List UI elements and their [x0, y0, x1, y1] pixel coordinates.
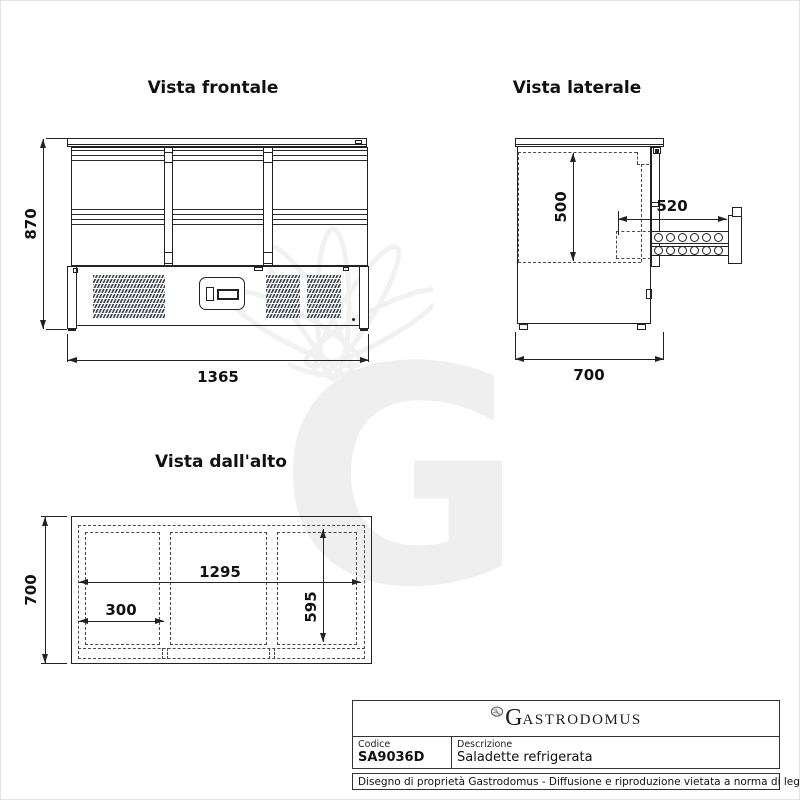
worktop	[67, 138, 367, 147]
arrowhead	[570, 252, 576, 261]
code-label: Codice	[358, 739, 390, 750]
dimension-label: 870	[22, 208, 40, 239]
extension-line	[46, 329, 67, 330]
mullion	[263, 147, 273, 266]
vent-grille	[93, 275, 165, 318]
arrowhead	[352, 579, 361, 585]
compartment	[277, 532, 357, 645]
dimension-label: 1365	[197, 368, 239, 386]
drawer-front	[172, 209, 263, 226]
control-display	[217, 289, 239, 300]
chef-hat-icon	[490, 706, 504, 720]
arrowhead	[655, 356, 664, 362]
drawer-front	[172, 150, 263, 162]
dimension-line	[79, 621, 164, 622]
arrowhead	[718, 216, 727, 222]
drawer-front	[272, 150, 367, 162]
brand-initial: G	[505, 706, 522, 730]
description-value: Saladette refrigerata	[457, 750, 593, 765]
arrowhead	[40, 320, 46, 329]
dimension-line	[323, 529, 324, 642]
arrowhead	[320, 633, 326, 642]
control-switch	[206, 287, 214, 301]
description-label: Descrizione	[457, 739, 512, 750]
arrowhead	[40, 139, 46, 148]
arrowhead	[79, 618, 88, 624]
arrowhead	[155, 618, 164, 624]
side-view-title: Vista laterale	[513, 78, 642, 98]
arrowhead	[320, 529, 326, 538]
arrowhead	[360, 357, 369, 363]
mullion	[164, 147, 173, 266]
vent-grille	[307, 275, 341, 318]
dimension-label: 520	[656, 197, 687, 215]
compartment	[170, 532, 267, 645]
foot	[68, 328, 76, 331]
dimension-label: 1295	[199, 563, 241, 581]
drawer-front	[72, 150, 164, 162]
cabinet-body	[517, 146, 651, 324]
extension-line	[46, 138, 67, 139]
dimension-line	[68, 360, 369, 361]
dimension-line	[618, 219, 727, 220]
compartment	[85, 532, 160, 645]
dimension-line	[573, 153, 574, 261]
leg	[67, 266, 77, 329]
dimension-label: 595	[302, 591, 320, 622]
dimension-line	[45, 517, 46, 663]
drawer-cabinet-body	[71, 147, 368, 266]
arrowhead	[79, 579, 88, 585]
arrowhead	[618, 216, 627, 222]
drawer-front	[272, 209, 367, 226]
dimension-label: 700	[573, 366, 604, 384]
foot	[637, 324, 646, 330]
dimension-label: 500	[552, 191, 570, 222]
leg	[359, 266, 369, 329]
brand-logo: GASTRODOMUS	[352, 701, 780, 735]
arrowhead	[515, 356, 524, 362]
dimension-line	[43, 139, 44, 329]
legal-notice: Disegno di proprietà Gastrodomus - Diffu…	[358, 776, 800, 788]
dimension-label: 300	[105, 601, 136, 619]
extension-line	[41, 663, 67, 664]
vent-grille	[266, 275, 300, 318]
dimension-label: 700	[22, 574, 40, 605]
top-view-title: Vista dall'alto	[155, 452, 287, 472]
drawer-front	[72, 209, 164, 226]
dimension-line	[79, 582, 361, 583]
dimension-line	[515, 359, 664, 360]
extension-line	[618, 211, 619, 235]
front-view-title: Vista frontale	[148, 78, 279, 98]
foot	[519, 324, 528, 330]
foot	[360, 328, 368, 331]
drawer-front-bracket	[728, 215, 742, 264]
arrowhead	[570, 153, 576, 162]
arrowhead	[68, 357, 77, 363]
technical-drawing-sheet: G Vista frontale	[0, 0, 800, 800]
arrowhead	[42, 654, 48, 663]
arrowhead	[42, 517, 48, 526]
code-value: SA9036D	[358, 750, 424, 765]
brand-name: ASTRODOMUS	[522, 713, 641, 728]
